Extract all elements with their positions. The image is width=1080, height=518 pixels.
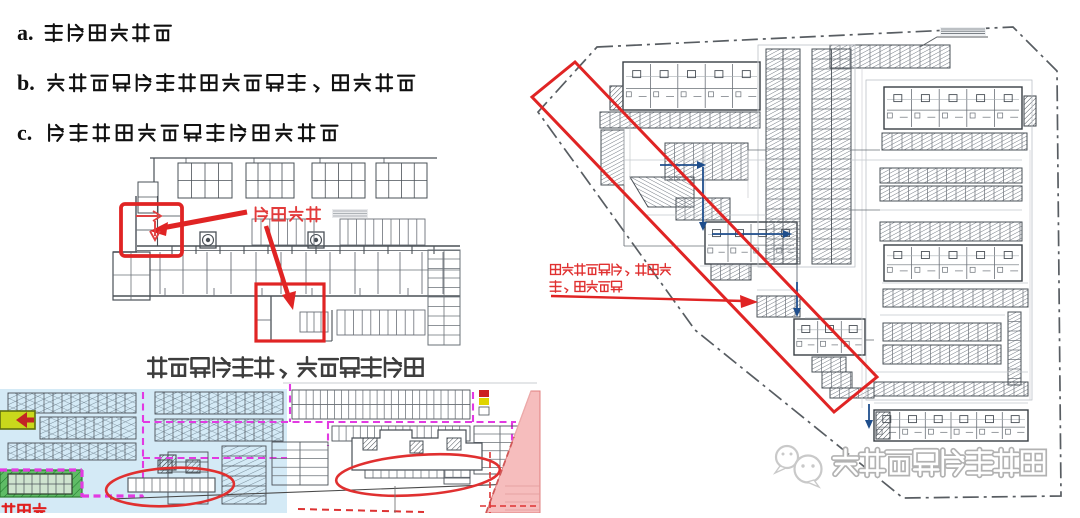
svg-text:a.: a.	[17, 20, 34, 45]
svg-text:c.: c.	[17, 120, 32, 145]
svg-text:b.: b.	[17, 70, 35, 95]
